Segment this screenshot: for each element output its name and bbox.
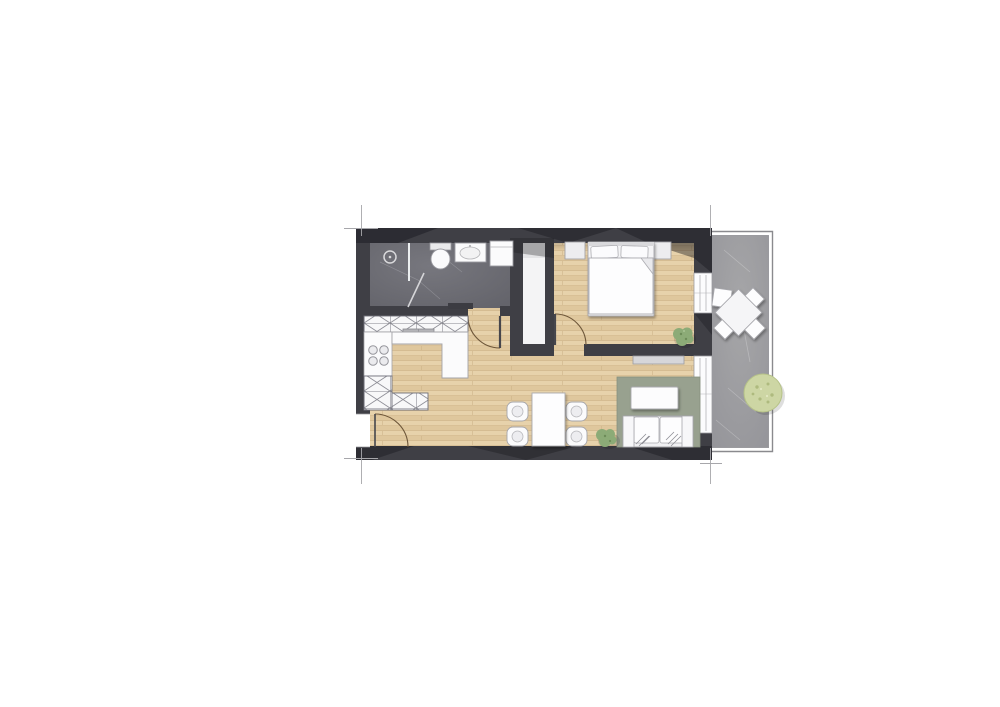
floor-plan-page <box>0 0 1000 707</box>
bed-headboard <box>588 242 654 246</box>
bed-pillow-right <box>621 246 648 259</box>
sideboard <box>633 356 684 364</box>
kitchen-lower-cabinets-south <box>392 393 428 410</box>
washbasin-tap <box>469 245 471 247</box>
floor-plan-canvas <box>0 0 1000 707</box>
sofa <box>623 416 693 447</box>
coffee-table <box>631 387 678 409</box>
bathroom-south-wall-stub <box>500 306 510 316</box>
toilet <box>430 243 451 269</box>
double-bed <box>588 242 654 316</box>
washing-machine <box>490 241 513 266</box>
nightstand-left <box>565 242 585 259</box>
washbasin <box>455 243 486 262</box>
radiator <box>448 303 473 309</box>
terrace-floor <box>712 236 769 448</box>
bedroom-south-wall <box>584 344 694 356</box>
bed-duvet <box>589 258 653 314</box>
terrace-dining-set <box>712 288 765 340</box>
bedroom-window <box>694 273 712 313</box>
kitchen-lower-cabinets-west <box>364 376 392 410</box>
bed-pillow-left <box>591 245 619 258</box>
entrance-gap <box>356 414 370 447</box>
nightstand-right <box>653 242 671 259</box>
shower-drain-dot <box>389 256 392 259</box>
dining-table <box>532 393 565 446</box>
entrance-opening <box>356 414 370 447</box>
sofa-armrest-left <box>623 416 634 447</box>
kitchen-counter-west <box>364 332 392 376</box>
sofa-armrest-right <box>682 416 693 447</box>
